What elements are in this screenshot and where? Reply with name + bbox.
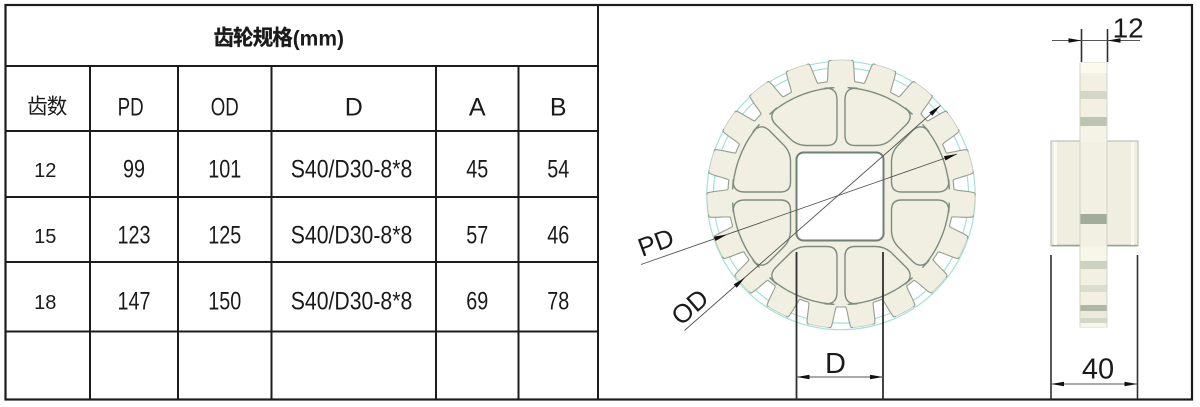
svg-text:125: 125 xyxy=(208,222,241,250)
svg-text:57: 57 xyxy=(466,222,488,250)
svg-text:69: 69 xyxy=(466,288,488,316)
svg-text:15: 15 xyxy=(34,226,56,248)
svg-text:54: 54 xyxy=(547,156,569,184)
svg-text:D: D xyxy=(825,348,846,380)
svg-text:18: 18 xyxy=(34,292,56,314)
svg-text:78: 78 xyxy=(547,288,569,316)
svg-text:12: 12 xyxy=(34,160,56,182)
svg-text:147: 147 xyxy=(118,288,151,316)
svg-text:123: 123 xyxy=(118,222,151,250)
svg-text:150: 150 xyxy=(208,288,241,316)
svg-text:99: 99 xyxy=(123,156,145,184)
svg-text:40: 40 xyxy=(1082,354,1114,386)
svg-text:S40/D30-8*8: S40/D30-8*8 xyxy=(291,156,413,184)
svg-text:OD: OD xyxy=(665,283,714,331)
svg-text:S40/D30-8*8: S40/D30-8*8 xyxy=(291,222,413,250)
svg-text:A: A xyxy=(469,94,486,122)
svg-text:(mm): (mm) xyxy=(293,28,344,51)
svg-text:46: 46 xyxy=(547,222,569,250)
svg-text:45: 45 xyxy=(466,156,488,184)
svg-text:PD: PD xyxy=(118,94,144,122)
svg-text:PD: PD xyxy=(634,222,678,263)
svg-text:101: 101 xyxy=(208,156,241,184)
svg-text:S40/D30-8*8: S40/D30-8*8 xyxy=(291,288,413,316)
svg-text:12: 12 xyxy=(1113,13,1144,44)
svg-text:D: D xyxy=(345,94,363,122)
svg-text:B: B xyxy=(550,94,567,122)
svg-text:OD: OD xyxy=(211,94,239,122)
